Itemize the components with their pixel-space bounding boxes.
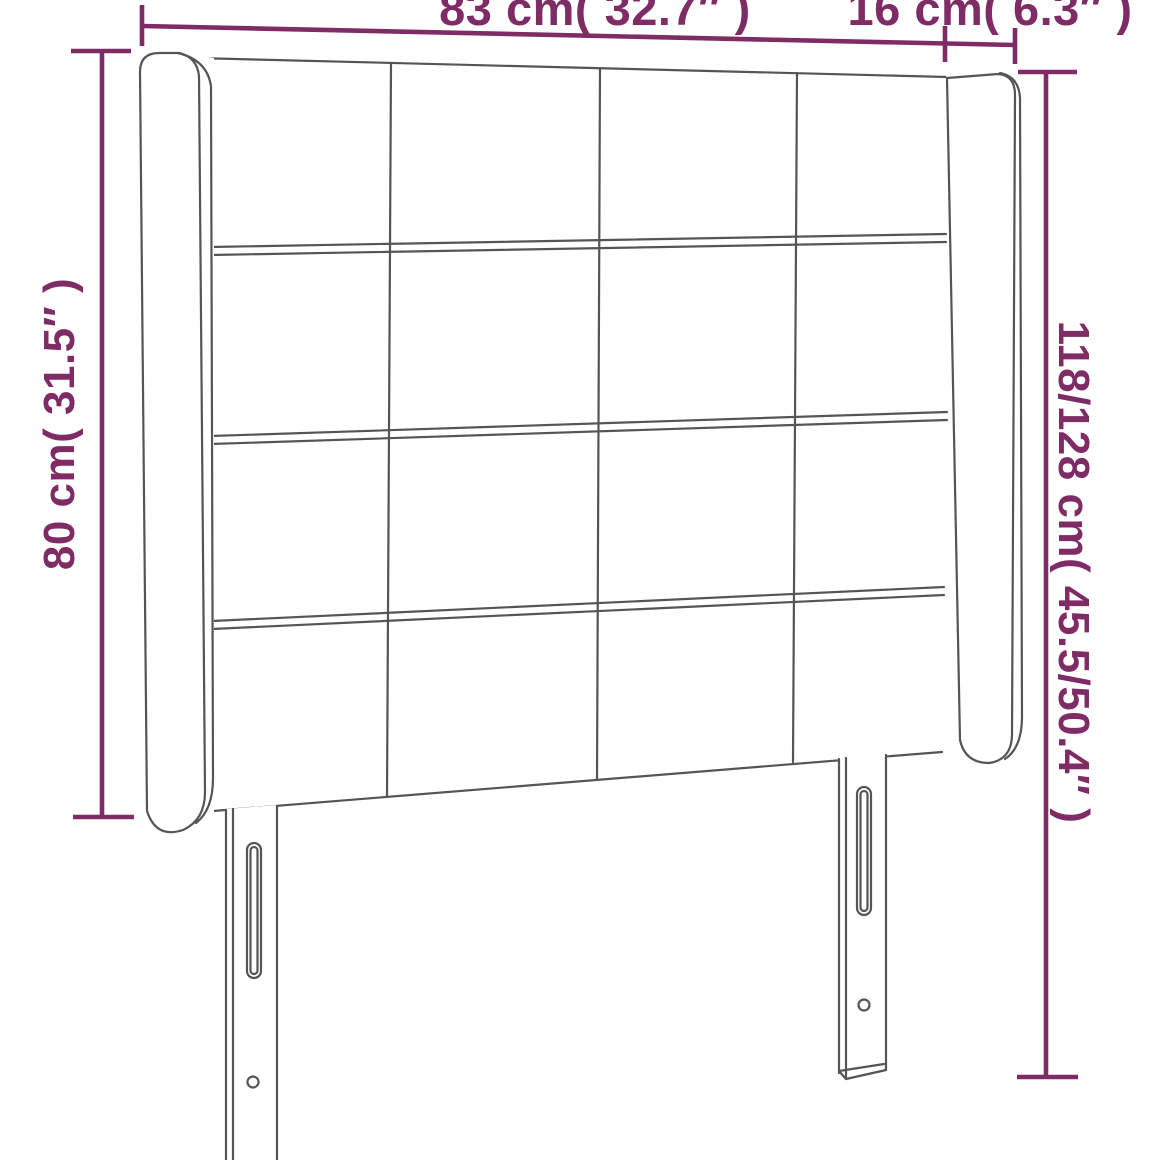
headboard-body (140, 53, 1023, 1160)
left-leg (226, 805, 277, 1160)
right-leg (839, 755, 886, 1079)
width-dimension-label: 83 cm( 32.7″ ) (439, 0, 751, 32)
front-height-dimension-label: 80 cm( 31.5″ ) (38, 278, 82, 570)
left-wing-side-fill (180, 53, 214, 832)
wing-depth-dimension-label: 16 cm( 6.3″ ) (847, 0, 1132, 32)
main-panel (197, 57, 952, 812)
right-wing (946, 70, 1023, 768)
headboard-dimension-diagram: 83 cm( 32.7″ ) 16 cm( 6.3″ ) 80 cm( 31.5… (0, 0, 1160, 1160)
headboard-line-drawing (0, 0, 1160, 1160)
total-height-dimension-label: 118/128 cm( 45.5/50.4″ ) (1051, 321, 1095, 824)
left-wing (140, 53, 214, 832)
